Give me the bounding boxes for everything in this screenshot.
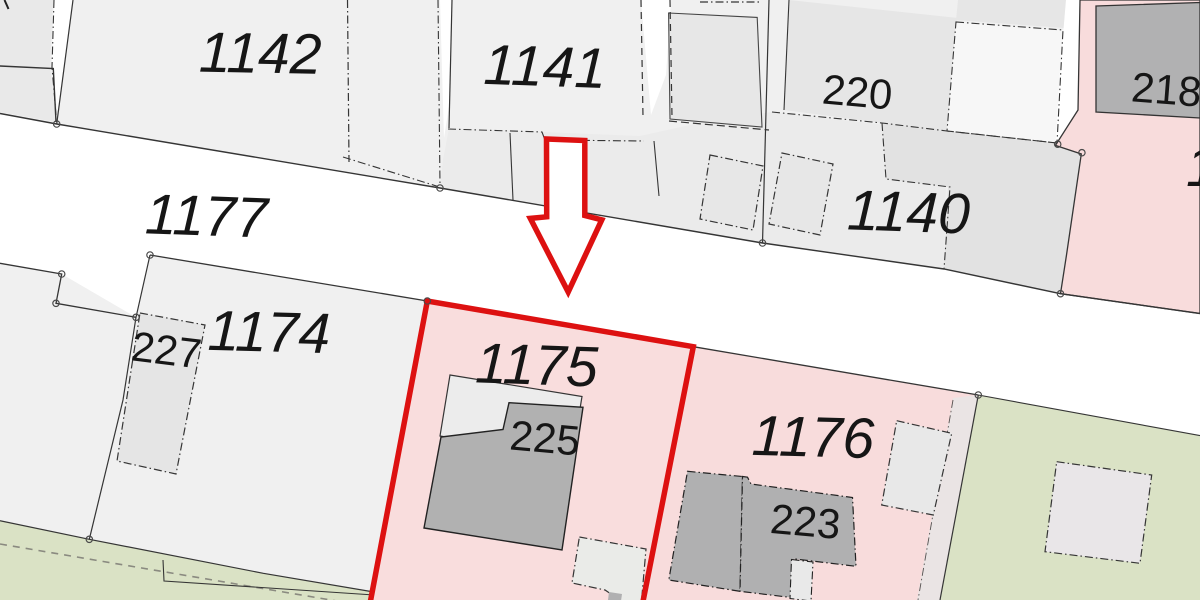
- svg-text:223: 223: [769, 495, 843, 548]
- svg-text:1141: 1141: [483, 33, 608, 101]
- svg-text:1142: 1142: [198, 21, 322, 87]
- svg-text:1175: 1175: [474, 331, 599, 399]
- svg-text:1174: 1174: [207, 299, 331, 366]
- svg-text:218: 218: [1130, 63, 1200, 115]
- svg-text:220: 220: [820, 66, 894, 119]
- svg-text:227: 227: [129, 322, 204, 377]
- svg-text:1176: 1176: [751, 404, 876, 471]
- svg-text:11: 11: [1186, 135, 1200, 199]
- svg-text:1177: 1177: [144, 182, 271, 250]
- svg-text:1140: 1140: [846, 178, 971, 246]
- svg-text:225: 225: [508, 412, 582, 465]
